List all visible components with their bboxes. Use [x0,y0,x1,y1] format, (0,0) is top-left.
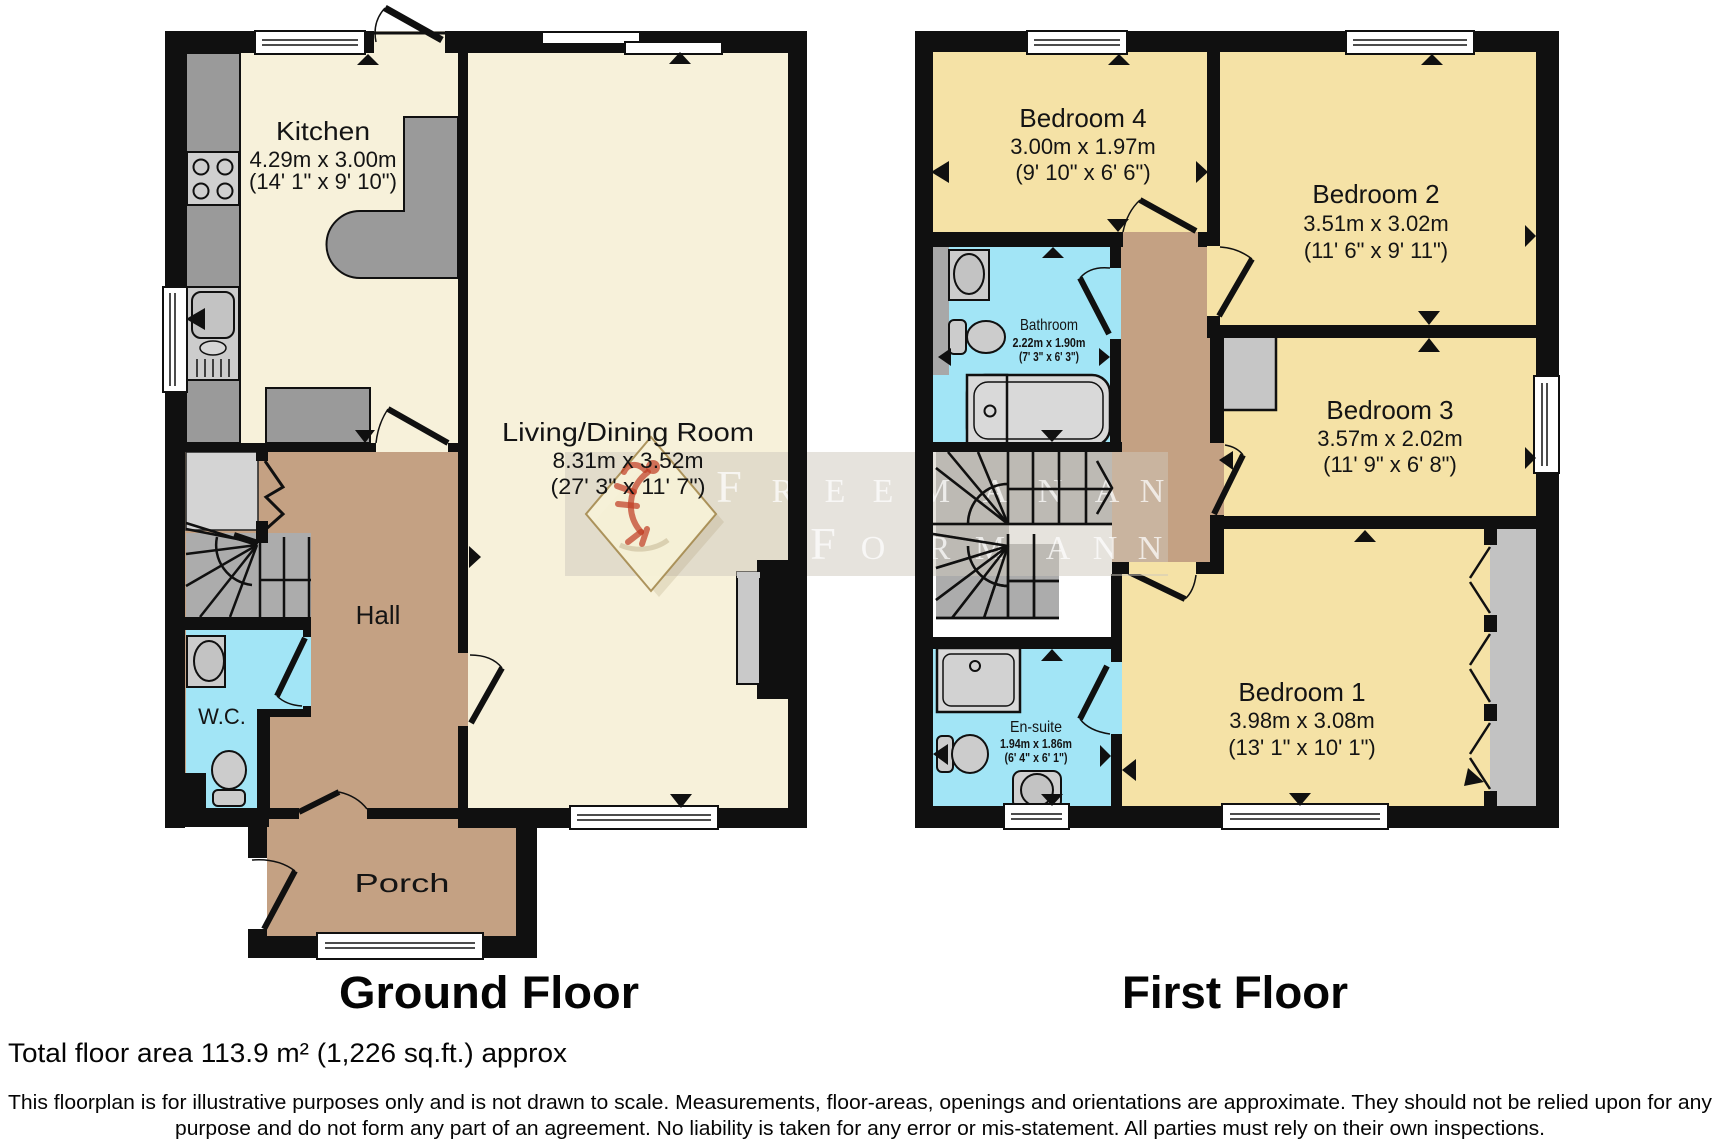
svg-text:Bedroom 3: Bedroom 3 [1326,395,1453,425]
svg-text:Bedroom 1: Bedroom 1 [1238,677,1365,707]
svg-text:N: N [1093,530,1118,567]
svg-text:3.00m x 1.97m: 3.00m x 1.97m [1010,134,1156,159]
svg-text:(27' 3" x 11' 7"): (27' 3" x 11' 7") [551,474,706,499]
svg-text:En-suite: En-suite [1010,719,1062,736]
svg-text:E: E [825,473,846,510]
svg-text:E: E [873,473,894,510]
svg-text:First Floor: First Floor [1122,967,1348,1018]
svg-text:Ground Floor: Ground Floor [339,967,639,1018]
svg-text:O: O [861,530,886,567]
svg-text:W.C.: W.C. [198,704,246,729]
svg-text:3.57m x 2.02m: 3.57m x 2.02m [1317,426,1463,451]
svg-text:(6' 4" x 6' 1"): (6' 4" x 6' 1") [1005,751,1068,765]
svg-text:Kitchen: Kitchen [276,116,370,146]
svg-text:N: N [1138,530,1163,567]
svg-text:A: A [1046,530,1071,567]
svg-text:1.94m x 1.86m: 1.94m x 1.86m [1000,737,1072,751]
svg-text:(11' 9" x 6' 8"): (11' 9" x 6' 8") [1323,452,1457,477]
svg-text:Bathroom: Bathroom [1020,317,1078,334]
svg-text:(14' 1" x 9' 10"): (14' 1" x 9' 10") [249,169,397,194]
svg-text:(13' 1" x 10' 1"): (13' 1" x 10' 1") [1228,735,1376,760]
svg-text:3.98m x 3.08m: 3.98m x 3.08m [1229,708,1375,733]
svg-text:Porch: Porch [355,868,450,898]
svg-text:(7' 3" x 6' 3"): (7' 3" x 6' 3") [1019,350,1079,364]
svg-text:(9' 10" x 6' 6"): (9' 10" x 6' 6") [1015,160,1150,185]
svg-text:Bedroom 2: Bedroom 2 [1312,179,1439,209]
svg-text:N: N [1140,473,1165,510]
svg-text:8.31m x 3.52m: 8.31m x 3.52m [553,448,704,473]
svg-text:Bedroom 4: Bedroom 4 [1019,103,1146,133]
svg-text:(11' 6" x 9' 11"): (11' 6" x 9' 11") [1304,238,1448,263]
svg-text:This floorplan is for illustra: This floorplan is for illustrative purpo… [8,1092,1712,1114]
svg-text:Hall: Hall [356,600,401,630]
svg-text:Living/Dining Room: Living/Dining Room [502,417,754,447]
svg-text:3.51m x 3.02m: 3.51m x 3.02m [1303,211,1449,236]
svg-text:Total floor area 113.9 m² (1,2: Total floor area 113.9 m² (1,226 sq.ft.)… [8,1038,568,1068]
svg-text:F: F [810,518,836,569]
svg-text:2.22m x 1.90m: 2.22m x 1.90m [1013,336,1086,350]
svg-text:F: F [716,461,742,512]
svg-text:purpose and do not form any pa: purpose and do not form any part of an a… [175,1118,1545,1140]
